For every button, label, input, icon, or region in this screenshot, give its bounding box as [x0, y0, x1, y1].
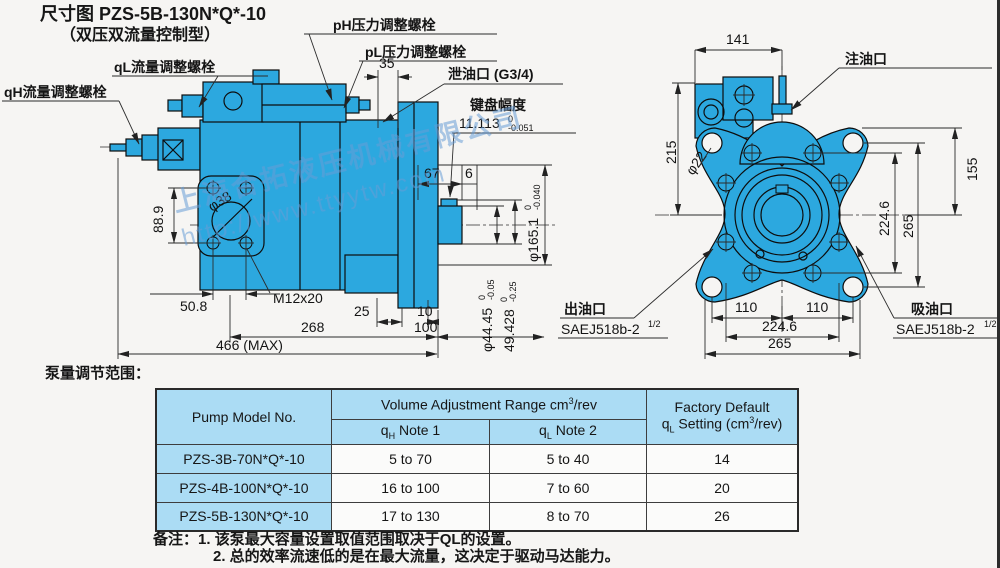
svg-text:-0.040: -0.040 — [532, 184, 542, 210]
dim-key-width-tol-lower: -0.051 — [508, 123, 534, 133]
dim-155: 155 — [964, 157, 980, 181]
cell-qh-range: 5 to 70 — [332, 444, 490, 473]
svg-text:-0.05: -0.05 — [486, 279, 496, 300]
dim-100: 100 — [414, 319, 438, 335]
cell-model: PZS-5B-130N*Q*-10 — [156, 502, 332, 531]
dim-50-8: 50.8 — [180, 298, 207, 314]
dim-141: 141 — [726, 31, 750, 47]
dim-466-max: 466 (MAX) — [216, 337, 283, 353]
label-key-width: 键盘幅度 — [469, 97, 527, 113]
label-suction-port: 吸油口 — [911, 301, 953, 317]
cell-ql-range: 8 to 70 — [490, 502, 647, 531]
label-fill-port: 注油口 — [845, 51, 887, 67]
cell-qh-range: 17 to 130 — [332, 502, 490, 531]
cell-model: PZS-3B-70N*Q*-10 — [156, 444, 332, 473]
label-qh-screw: qH流量调整螺栓 — [4, 84, 107, 100]
table-row: PZS-5B-130N*Q*-10 17 to 130 8 to 70 26 — [156, 502, 798, 531]
dim-224-6-v: 224.6 — [876, 201, 892, 236]
dim-265-v: 265 — [900, 214, 916, 238]
cell-model: PZS-4B-100N*Q*-10 — [156, 473, 332, 502]
col-header-volume-range: Volume Adjustment Range cm3/rev — [332, 389, 647, 419]
col-header-factory-default: Factory Default qL Setting (cm3/rev) — [647, 389, 799, 444]
svg-text:φ165.1: φ165.1 — [525, 218, 541, 262]
note-line2: 2. 总的效率流速低的是在最大流量，这决定于驱动马达能力。 — [213, 548, 620, 565]
label-ql-screw: qL流量调整螺栓 — [114, 59, 215, 75]
svg-text:49.428: 49.428 — [501, 309, 517, 352]
cell-ql-range: 5 to 40 — [490, 444, 647, 473]
cell-factory-default: 14 — [647, 444, 799, 473]
dim-25: 25 — [354, 303, 370, 319]
dim-268: 268 — [301, 319, 325, 335]
dim-pilot-diameter: φ165.1 0 -0.040 — [523, 184, 542, 262]
dim-shaft-diameter: φ44.45 0 -0.05 — [477, 279, 496, 352]
label-drain-port: 泄油口 (G3/4) — [448, 66, 534, 82]
cell-factory-default: 20 — [647, 473, 799, 502]
label-outlet-port: 出油口 — [564, 301, 606, 317]
dim-110-left: 110 — [735, 299, 758, 315]
dim-6: 6 — [465, 165, 473, 181]
dim-10: 10 — [417, 303, 433, 319]
dim-key-height: 49.428 0 -0.25 — [499, 281, 518, 352]
cell-factory-default: 26 — [647, 502, 799, 531]
col-header-qh: qH Note 1 — [332, 419, 490, 444]
dim-key-width-value: 11.113 — [459, 115, 500, 131]
dim-35: 35 — [379, 55, 395, 71]
label-outlet-spec: SAEJ518b-2 — [561, 321, 640, 337]
cell-qh-range: 16 to 100 — [332, 473, 490, 502]
notes: 备注：1. 该泵最大容量设置取值范围取决于QL的设置。 2. 总的效率流速低的是… — [153, 531, 620, 565]
label-ph-screw: pH压力调整螺栓 — [333, 17, 436, 33]
pump-spec-table: Pump Model No. Volume Adjustment Range c… — [155, 388, 799, 532]
label-outlet-spec-sup: 1/2 — [648, 319, 661, 329]
table-row: PZS-4B-100N*Q*-10 16 to 100 7 to 60 20 — [156, 473, 798, 502]
dim-224-6-h: 224.6 — [762, 318, 797, 334]
table-caption: 泵量调节范围： — [45, 362, 150, 383]
svg-text:φ44.45: φ44.45 — [479, 308, 495, 352]
dim-110-right: 110 — [806, 299, 829, 315]
pump-rear-view — [655, 66, 910, 332]
col-header-model: Pump Model No. — [156, 389, 332, 444]
dim-215: 215 — [663, 140, 679, 164]
drawing-sheet: 尺寸图 PZS-5B-130N*Q*-10 （双压双流量控制型） — [0, 0, 1000, 568]
dim-88-9: 88.9 — [150, 206, 166, 233]
svg-text:-0.25: -0.25 — [508, 281, 518, 302]
col-header-ql: qL Note 2 — [490, 419, 647, 444]
note-line1: 备注：1. 该泵最大容量设置取值范围取决于QL的设置。 — [153, 531, 620, 548]
label-m12x20: M12x20 — [273, 290, 323, 306]
cell-ql-range: 7 to 60 — [490, 473, 647, 502]
dim-67: 67 — [424, 165, 440, 181]
dim-265-h: 265 — [768, 335, 792, 351]
label-suction-spec-sup: 1/2 — [984, 319, 997, 329]
label-suction-spec: SAEJ518b-2 — [896, 321, 975, 337]
table-row: PZS-3B-70N*Q*-10 5 to 70 5 to 40 14 — [156, 444, 798, 473]
